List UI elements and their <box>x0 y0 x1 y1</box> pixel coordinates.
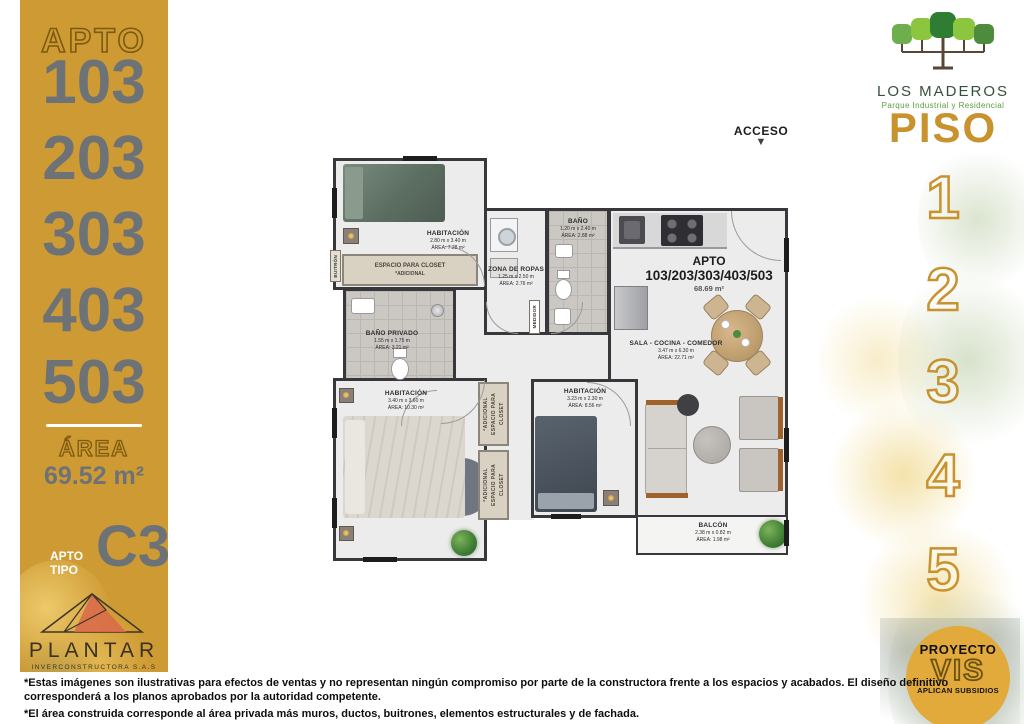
apto-tipo-value: C3 <box>96 518 168 576</box>
label-bano-privado: BAÑO PRIVADO 1.55 m x 1.75 m ÁREA: 3.21 … <box>347 330 437 351</box>
floor-number-3: 3 <box>868 352 1018 412</box>
floor-number-1: 1 <box>868 168 1018 228</box>
lamp-icon <box>608 495 614 501</box>
label-bedroom-2: HABITACIÓN 3.23 m x 2.30 m ÁREA: 8.56 m² <box>533 388 637 409</box>
unit-number-303: 303 <box>20 204 168 266</box>
label-bedroom-1: HABITACIÓN 2.80 m x 3.40 m ÁREA: 7.28 m² <box>393 230 503 251</box>
bed-dark <box>535 416 597 512</box>
side-table <box>677 394 699 416</box>
brochure-page: APTO 103 203 303 403 503 ÁREA 69.52 m² A… <box>0 0 1024 724</box>
armchair <box>739 448 779 492</box>
window <box>332 408 337 438</box>
window <box>784 428 789 462</box>
sofa <box>645 404 687 494</box>
unit-number-203: 203 <box>20 128 168 190</box>
window <box>332 188 337 218</box>
area-heading: ÁREA <box>20 436 168 462</box>
plate <box>721 320 730 329</box>
apto-title-line1: APTO <box>633 254 785 268</box>
apto-tipo-label: APTO TIPO <box>50 550 83 578</box>
left-sidebar: APTO 103 203 303 403 503 ÁREA 69.52 m² A… <box>20 0 168 672</box>
stove-icon <box>661 215 703 246</box>
window <box>403 156 437 161</box>
lamp-icon <box>343 392 349 398</box>
unit-number-103: 103 <box>20 52 168 114</box>
closet-note: *ADICIONAL <box>482 468 490 502</box>
plant-icon <box>759 520 787 548</box>
toilet-tank <box>557 270 570 279</box>
acceso-label: ACCESO ▼ <box>721 124 801 147</box>
disclaimer-line-2: *El área construida corresponde al área … <box>24 707 980 721</box>
floor-number-2: 2 <box>868 260 1018 320</box>
label-bedroom-main: HABITACIÓN 3.40 m x 3.60 m ÁREA: 10.30 m… <box>351 390 461 411</box>
floor-plan: ESPACIO PARA CLOSET *ADICIONAL *ADICIONA… <box>333 158 791 598</box>
label-sala-cocina-comedor: SALA - COCINA - COMEDOR 3.47 m x 6.30 m … <box>621 340 731 361</box>
closet-label: ESPACIO PARA CLOSET <box>490 452 506 518</box>
unit-number-403: 403 <box>20 280 168 342</box>
label-bano: BAÑO 1.20 m x 2.40 m ÁREA: 2.88 m² <box>545 218 611 239</box>
closet-note: *ADICIONAL <box>482 397 490 431</box>
plate <box>741 338 750 347</box>
closet-note: *ADICIONAL <box>395 271 425 277</box>
lamp-icon <box>348 233 354 239</box>
plant-icon <box>451 530 477 556</box>
medidor-label: MEDIDOR <box>532 305 537 328</box>
closet-label: ESPACIO PARA CLOSET <box>490 384 506 444</box>
closet-label: ESPACIO PARA CLOSET <box>375 263 446 269</box>
coffee-table <box>693 426 731 464</box>
divider-line <box>46 424 142 427</box>
window <box>332 498 337 528</box>
piso-heading: PISO <box>868 104 1018 152</box>
buitron-label: BUITRÓN <box>333 255 338 278</box>
sink <box>351 298 375 314</box>
disclaimer: *Estas imágenes son ilustrativas para ef… <box>24 676 980 723</box>
centerpiece-plant <box>733 330 741 338</box>
acceso-arrow-icon: ▼ <box>721 138 801 147</box>
window <box>363 557 397 562</box>
toilet-bowl <box>555 279 572 300</box>
plantar-subtitle: INVERCONSTRUCTORA S.A.S <box>20 664 168 671</box>
label-balcon: BALCÓN 2.38 m x 0.82 m ÁREA: 1.98 m² <box>663 522 763 543</box>
buitron-tag: BUITRÓN <box>330 250 341 282</box>
toilet-bowl <box>391 358 409 380</box>
window <box>784 520 789 546</box>
window <box>551 514 581 519</box>
closet-vertical-2: *ADICIONAL ESPACIO PARA CLOSET <box>478 450 509 520</box>
los-maderos-logo: LOS MADEROS Parque Industrial y Residenc… <box>868 12 1018 110</box>
kitchen-counter <box>613 213 727 249</box>
apto-title-area: 68.69 m² <box>633 284 785 293</box>
apto-title: APTO 103/203/303/403/503 68.69 m² <box>633 254 785 293</box>
shower-head <box>431 304 444 317</box>
unit-number-503: 503 <box>20 352 168 414</box>
bed-green <box>343 164 445 222</box>
label-zona-ropas: ZONA DE ROPAS 1.25 m x 2.50 m ÁREA: 2.76… <box>483 266 549 287</box>
disclaimer-line-1: *Estas imágenes son ilustrativas para ef… <box>24 676 980 705</box>
area-value: 69.52 m² <box>20 462 168 491</box>
apto-tipo-word2: TIPO <box>50 563 78 577</box>
sink <box>555 244 573 258</box>
apto-tipo-word1: APTO <box>50 549 83 563</box>
brand-name: LOS MADEROS <box>868 83 1018 100</box>
plantar-name: PLANTAR <box>20 639 168 663</box>
trees-icon <box>884 12 1002 74</box>
armchair <box>739 396 779 440</box>
floor-number-4: 4 <box>868 446 1018 506</box>
plantar-mountains-icon <box>34 586 154 634</box>
kitchen-sink <box>619 216 645 244</box>
window <box>784 238 789 272</box>
bed-white <box>343 416 465 518</box>
floor-number-5: 5 <box>868 540 1018 600</box>
plantar-logo: PLANTAR INVERCONSTRUCTORA S.A.S <box>20 586 168 671</box>
apto-title-line2: 103/203/303/403/503 <box>633 268 785 283</box>
medidor-tag: MEDIDOR <box>529 300 540 334</box>
lamp-icon <box>343 530 349 536</box>
